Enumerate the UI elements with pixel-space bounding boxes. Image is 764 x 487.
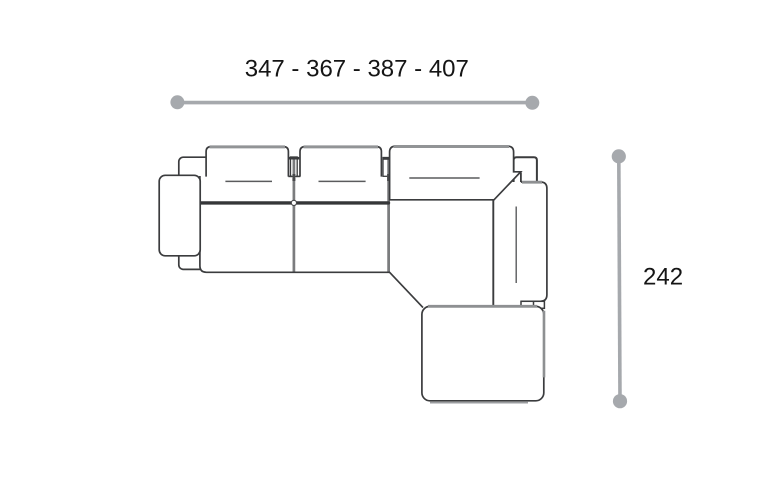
svg-text:347 - 367 - 387 - 407: 347 - 367 - 387 - 407 — [245, 56, 469, 83]
svg-text:242: 242 — [643, 264, 683, 291]
